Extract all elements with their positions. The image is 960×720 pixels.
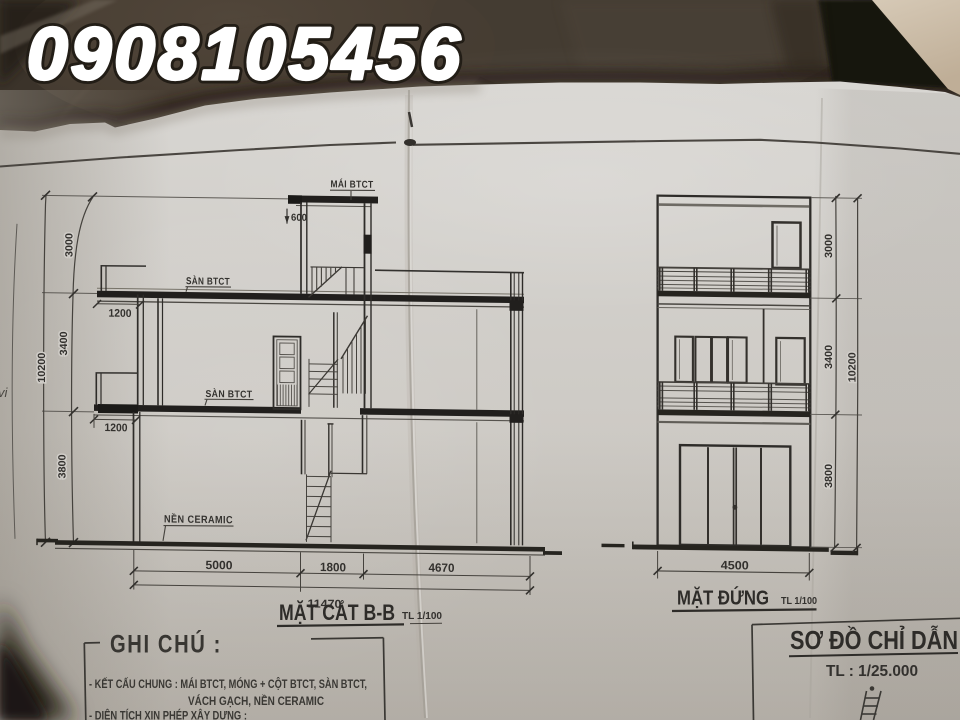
- svg-text:SÀN BTCT: SÀN BTCT: [206, 387, 253, 401]
- svg-text:3800: 3800: [823, 464, 835, 488]
- svg-text:MẶT CẮT B-B: MẶT CẮT B-B: [279, 600, 395, 625]
- svg-text:1200: 1200: [105, 422, 128, 434]
- svg-text:3400: 3400: [58, 331, 70, 355]
- svg-text:MẶT ĐỨNG: MẶT ĐỨNG: [677, 586, 769, 610]
- svg-text:1800: 1800: [320, 560, 346, 574]
- svg-text:vi: vi: [0, 385, 9, 400]
- svg-text:5000: 5000: [206, 558, 233, 572]
- svg-text:MÁI BTCT: MÁI BTCT: [331, 177, 374, 191]
- svg-text:10200: 10200: [846, 352, 858, 382]
- svg-text:600: 600: [291, 213, 307, 224]
- svg-text:1200: 1200: [109, 308, 132, 320]
- svg-text:VÁCH GẠCH, NỀN CERAMIC: VÁCH GẠCH, NỀN CERAMIC: [188, 695, 324, 708]
- svg-text:0908105456: 0908105456: [27, 14, 463, 95]
- svg-text:GHI CHÚ :: GHI CHÚ :: [110, 629, 222, 659]
- svg-text:3000: 3000: [823, 234, 835, 258]
- svg-text:10200: 10200: [36, 352, 48, 382]
- svg-text:TL 1/100: TL 1/100: [402, 610, 442, 622]
- svg-text:3400: 3400: [823, 345, 835, 369]
- svg-text:NỀN CERAMIC: NỀN CERAMIC: [164, 512, 233, 526]
- svg-text:TL : 1/25.000: TL : 1/25.000: [826, 663, 918, 680]
- svg-text:4500: 4500: [721, 558, 749, 572]
- svg-text:- DIỆN TÍCH XIN PHÉP XÂY DỰNG: - DIỆN TÍCH XIN PHÉP XÂY DỰNG :: [89, 710, 247, 720]
- svg-text:SƠ ĐỒ CHỈ DẪN: SƠ ĐỒ CHỈ DẪN: [790, 625, 958, 655]
- svg-text:4670: 4670: [428, 561, 454, 575]
- svg-text:3800: 3800: [57, 454, 69, 478]
- svg-text:3000: 3000: [64, 233, 76, 257]
- svg-text:SÀN BTCT: SÀN BTCT: [186, 274, 230, 288]
- svg-text:TL 1/100: TL 1/100: [781, 596, 817, 607]
- svg-text:- KẾT CẤU CHUNG : MÁI BTCT, MÓ: - KẾT CẤU CHUNG : MÁI BTCT, MÓNG + CỘT B…: [89, 678, 367, 691]
